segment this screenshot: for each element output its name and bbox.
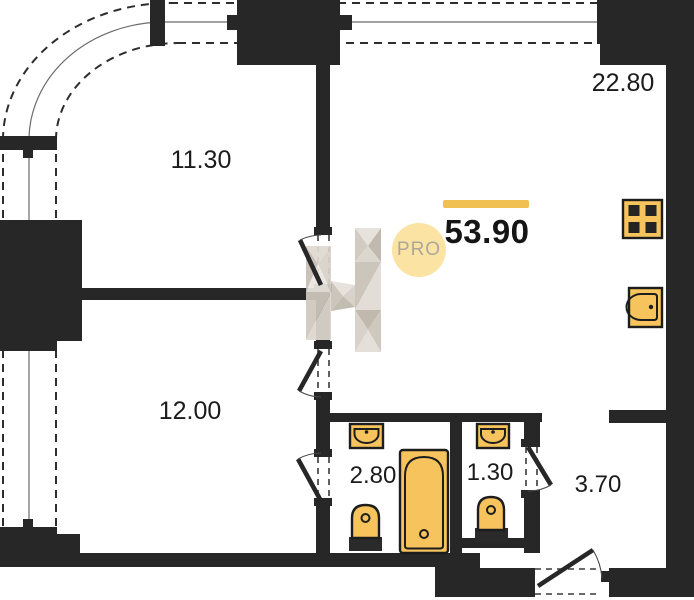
builder-logo-watermark (306, 228, 381, 352)
wc-sink-icon (477, 424, 509, 448)
wc-toilet-icon (475, 497, 508, 542)
room-area-label-lower-left: 12.00 (150, 398, 230, 426)
total-area-label: 53.90 (437, 213, 537, 251)
door-entrance (538, 550, 602, 586)
stove-icon (623, 200, 662, 238)
room-area-label-hallway: 3.70 (558, 472, 638, 498)
window-glazing (3, 3, 600, 534)
door-wc (528, 447, 551, 491)
bathroom-toilet-icon (349, 505, 382, 551)
room-area-label-wc: 1.30 (450, 460, 530, 486)
room-area-label-upper-left: 11.30 (161, 147, 241, 175)
total-area-accent-bar (443, 200, 529, 208)
floor-plan: PRO 53.90 11.30 22.80 12.00 2.80 1.30 3.… (0, 0, 694, 600)
room-area-label-kitchen-living: 22.80 (583, 70, 663, 98)
room-area-label-bathroom: 2.80 (333, 463, 413, 489)
bathroom-sink-icon (350, 424, 383, 448)
kitchen-sink-icon (627, 288, 663, 327)
